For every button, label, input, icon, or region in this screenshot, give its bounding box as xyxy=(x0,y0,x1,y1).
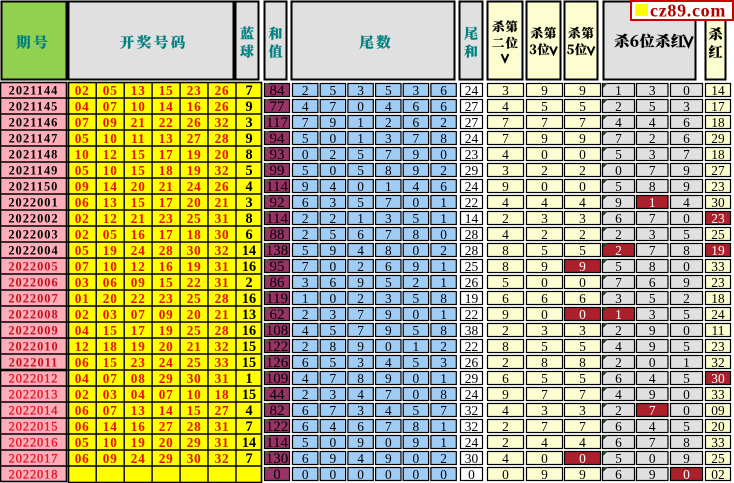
svg-text:4: 4 xyxy=(357,451,364,466)
svg-text:02: 02 xyxy=(75,387,90,402)
svg-text:23: 23 xyxy=(711,179,725,194)
svg-text:13: 13 xyxy=(103,195,118,210)
svg-text:0: 0 xyxy=(330,131,337,146)
svg-text:9: 9 xyxy=(357,339,364,354)
svg-text:25: 25 xyxy=(187,355,202,370)
svg-text:5: 5 xyxy=(385,275,392,290)
svg-text:18: 18 xyxy=(711,291,725,306)
svg-text:14: 14 xyxy=(159,99,174,114)
svg-text:10: 10 xyxy=(187,387,202,402)
svg-text:2022002: 2022002 xyxy=(8,212,58,226)
svg-text:09: 09 xyxy=(103,451,118,466)
svg-text:8: 8 xyxy=(440,131,447,146)
svg-text:30: 30 xyxy=(187,451,202,466)
svg-text:0: 0 xyxy=(683,467,690,482)
svg-text:9: 9 xyxy=(502,387,509,402)
svg-text:24: 24 xyxy=(131,451,146,466)
svg-text:1: 1 xyxy=(413,339,420,354)
svg-text:28: 28 xyxy=(215,131,230,146)
svg-text:2: 2 xyxy=(683,291,690,306)
svg-text:06: 06 xyxy=(75,419,90,434)
svg-text:6: 6 xyxy=(541,291,548,306)
svg-text:130: 130 xyxy=(266,451,289,467)
svg-text:4: 4 xyxy=(579,435,586,450)
svg-text:0: 0 xyxy=(579,275,586,290)
svg-text:27: 27 xyxy=(215,403,230,418)
svg-text:5: 5 xyxy=(245,163,252,179)
svg-text:19: 19 xyxy=(187,163,202,178)
svg-text:11: 11 xyxy=(712,323,725,338)
svg-text:17: 17 xyxy=(159,195,174,210)
svg-text:2: 2 xyxy=(502,419,509,434)
svg-text:8: 8 xyxy=(440,387,447,402)
svg-text:3: 3 xyxy=(649,307,656,322)
svg-text:2022005: 2022005 xyxy=(8,260,58,274)
svg-text:119: 119 xyxy=(266,291,288,307)
svg-text:2022015: 2022015 xyxy=(9,420,59,434)
svg-text:2: 2 xyxy=(302,211,309,226)
svg-text:06: 06 xyxy=(75,195,90,210)
svg-text:7: 7 xyxy=(683,147,690,162)
svg-text:3: 3 xyxy=(502,83,509,98)
svg-text:5: 5 xyxy=(683,419,690,434)
svg-text:15: 15 xyxy=(103,323,118,338)
svg-text:0: 0 xyxy=(683,323,690,338)
svg-text:15: 15 xyxy=(131,163,146,178)
svg-text:2021144: 2021144 xyxy=(9,84,59,98)
svg-text:30: 30 xyxy=(187,243,202,258)
svg-text:6: 6 xyxy=(683,131,690,146)
svg-text:32: 32 xyxy=(215,163,230,178)
svg-text:24: 24 xyxy=(465,387,479,402)
svg-text:1: 1 xyxy=(440,195,447,210)
svg-text:0: 0 xyxy=(440,227,447,242)
svg-text:16: 16 xyxy=(131,419,146,434)
svg-text:4: 4 xyxy=(385,99,392,114)
svg-text:4: 4 xyxy=(502,195,509,210)
svg-text:17: 17 xyxy=(159,227,174,242)
svg-text:29: 29 xyxy=(465,371,479,386)
svg-text:15: 15 xyxy=(242,387,256,403)
svg-text:2: 2 xyxy=(440,115,447,130)
svg-text:5: 5 xyxy=(615,451,622,466)
svg-text:25: 25 xyxy=(187,211,202,226)
svg-text:13: 13 xyxy=(131,403,146,418)
svg-text:7: 7 xyxy=(579,115,586,130)
svg-text:2022018: 2022018 xyxy=(9,468,59,482)
svg-text:7: 7 xyxy=(649,435,656,450)
svg-text:2: 2 xyxy=(649,131,656,146)
svg-text:9: 9 xyxy=(330,451,337,466)
svg-text:10: 10 xyxy=(103,435,118,450)
svg-text:28: 28 xyxy=(215,323,230,338)
svg-text:07: 07 xyxy=(131,307,146,322)
svg-text:3: 3 xyxy=(649,227,656,242)
svg-text:26: 26 xyxy=(187,115,202,130)
svg-text:2: 2 xyxy=(302,83,309,98)
svg-text:2: 2 xyxy=(302,387,309,402)
svg-text:3: 3 xyxy=(541,403,548,418)
svg-text:0: 0 xyxy=(330,291,337,306)
svg-text:3: 3 xyxy=(357,403,364,418)
svg-text:17: 17 xyxy=(131,323,146,338)
svg-text:2: 2 xyxy=(357,259,364,274)
svg-text:7: 7 xyxy=(302,259,309,274)
svg-text:3: 3 xyxy=(302,275,309,290)
svg-text:95: 95 xyxy=(270,259,285,275)
svg-text:7: 7 xyxy=(357,307,364,322)
svg-text:7: 7 xyxy=(330,371,337,386)
svg-text:0: 0 xyxy=(579,307,586,322)
svg-text:4: 4 xyxy=(649,419,656,434)
svg-text:2: 2 xyxy=(245,275,252,291)
svg-text:5: 5 xyxy=(649,99,656,114)
svg-text:22: 22 xyxy=(465,195,478,210)
svg-text:2: 2 xyxy=(302,339,309,354)
svg-text:3: 3 xyxy=(649,83,656,98)
svg-text:3: 3 xyxy=(413,83,420,98)
svg-text:114: 114 xyxy=(266,211,288,227)
svg-text:0: 0 xyxy=(330,163,337,178)
svg-text:9: 9 xyxy=(683,451,690,466)
svg-text:5: 5 xyxy=(413,403,420,418)
svg-text:16: 16 xyxy=(131,227,146,242)
svg-text:1: 1 xyxy=(440,307,447,322)
svg-text:22: 22 xyxy=(131,291,146,306)
svg-text:6: 6 xyxy=(413,99,420,114)
svg-text:2022014: 2022014 xyxy=(9,404,59,418)
svg-text:0: 0 xyxy=(385,435,392,450)
svg-text:9: 9 xyxy=(615,195,622,210)
svg-text:77: 77 xyxy=(270,99,286,115)
svg-text:21: 21 xyxy=(215,195,230,210)
svg-text:01: 01 xyxy=(75,291,90,306)
svg-text:2: 2 xyxy=(502,323,509,338)
svg-text:8: 8 xyxy=(683,435,690,450)
svg-text:15: 15 xyxy=(187,403,202,418)
svg-text:2: 2 xyxy=(357,291,364,306)
svg-text:4: 4 xyxy=(245,403,252,419)
svg-text:33: 33 xyxy=(711,435,725,450)
svg-text:5: 5 xyxy=(615,179,622,194)
svg-text:3: 3 xyxy=(385,131,392,146)
svg-text:2: 2 xyxy=(302,227,309,242)
svg-text:06: 06 xyxy=(75,451,90,466)
svg-text:1: 1 xyxy=(440,211,447,226)
svg-text:2: 2 xyxy=(440,451,447,466)
svg-text:19: 19 xyxy=(187,147,202,162)
svg-text:0: 0 xyxy=(579,451,586,466)
svg-text:8: 8 xyxy=(502,259,509,274)
svg-text:15: 15 xyxy=(242,355,256,371)
svg-text:8: 8 xyxy=(413,227,420,242)
svg-text:6: 6 xyxy=(330,275,337,290)
svg-text:0: 0 xyxy=(683,211,690,226)
svg-text:7: 7 xyxy=(649,243,656,258)
svg-text:04: 04 xyxy=(75,323,90,338)
svg-text:8: 8 xyxy=(440,291,447,306)
svg-text:23: 23 xyxy=(159,291,174,306)
svg-text:3: 3 xyxy=(541,323,548,338)
svg-text:0: 0 xyxy=(273,467,281,483)
svg-text:6: 6 xyxy=(357,419,364,434)
svg-text:5: 5 xyxy=(330,227,337,242)
svg-text:0: 0 xyxy=(413,451,420,466)
svg-text:7: 7 xyxy=(541,115,548,130)
svg-text:9: 9 xyxy=(649,339,656,354)
svg-text:9: 9 xyxy=(413,147,420,162)
svg-text:6: 6 xyxy=(302,355,309,370)
svg-text:02: 02 xyxy=(75,227,90,242)
svg-text:20: 20 xyxy=(159,435,174,450)
svg-text:0: 0 xyxy=(541,451,548,466)
svg-text:02: 02 xyxy=(75,307,90,322)
svg-text:8: 8 xyxy=(440,323,447,338)
svg-text:3: 3 xyxy=(357,355,364,370)
svg-text:14: 14 xyxy=(242,435,256,451)
svg-text:9: 9 xyxy=(683,163,690,178)
svg-text:2022007: 2022007 xyxy=(8,292,58,306)
svg-text:29: 29 xyxy=(159,451,174,466)
svg-text:5: 5 xyxy=(413,211,420,226)
svg-text:3: 3 xyxy=(385,211,392,226)
svg-text:32: 32 xyxy=(215,339,230,354)
svg-text:7: 7 xyxy=(385,227,392,242)
svg-text:6: 6 xyxy=(502,371,509,386)
svg-text:16: 16 xyxy=(242,291,256,307)
svg-text:0: 0 xyxy=(413,467,420,482)
svg-text:6: 6 xyxy=(357,227,364,242)
svg-text:2022001: 2022001 xyxy=(8,196,58,210)
svg-text:5: 5 xyxy=(541,99,548,114)
svg-text:9: 9 xyxy=(245,131,252,147)
svg-text:4: 4 xyxy=(302,323,309,338)
svg-text:84: 84 xyxy=(270,83,286,99)
svg-text:4: 4 xyxy=(541,435,548,450)
svg-text:94: 94 xyxy=(270,131,286,147)
svg-text:6: 6 xyxy=(615,211,622,226)
svg-text:2022003: 2022003 xyxy=(8,228,58,242)
svg-text:26: 26 xyxy=(215,179,230,194)
svg-text:5: 5 xyxy=(302,163,309,178)
svg-text:24: 24 xyxy=(465,179,479,194)
svg-text:99: 99 xyxy=(270,163,285,179)
svg-text:15: 15 xyxy=(131,147,146,162)
svg-text:2021148: 2021148 xyxy=(9,148,59,162)
svg-text:2: 2 xyxy=(615,403,622,418)
svg-text:2022004: 2022004 xyxy=(8,244,58,258)
svg-text:9: 9 xyxy=(245,99,252,115)
svg-text:6: 6 xyxy=(440,99,447,114)
svg-text:7: 7 xyxy=(541,419,548,434)
svg-text:4: 4 xyxy=(502,99,509,114)
svg-text:8: 8 xyxy=(579,355,586,370)
svg-text:2: 2 xyxy=(440,339,447,354)
svg-text:8: 8 xyxy=(330,339,337,354)
svg-text:0: 0 xyxy=(302,467,309,482)
svg-text:7: 7 xyxy=(330,403,337,418)
svg-text:2022013: 2022013 xyxy=(9,388,59,402)
svg-text:93: 93 xyxy=(270,147,285,163)
svg-text:5: 5 xyxy=(357,195,364,210)
svg-text:30: 30 xyxy=(465,451,479,466)
svg-text:09: 09 xyxy=(103,115,118,130)
svg-text:3: 3 xyxy=(330,195,337,210)
svg-text:122: 122 xyxy=(266,419,289,435)
svg-text:8: 8 xyxy=(502,339,509,354)
svg-text:1: 1 xyxy=(615,83,622,98)
svg-text:9: 9 xyxy=(385,371,392,386)
svg-text:28: 28 xyxy=(187,419,202,434)
svg-text:6: 6 xyxy=(615,419,622,434)
svg-text:3: 3 xyxy=(245,115,252,131)
svg-text:9: 9 xyxy=(413,259,420,274)
svg-text:8: 8 xyxy=(385,243,392,258)
svg-text:29: 29 xyxy=(465,163,479,178)
svg-text:4: 4 xyxy=(357,243,364,258)
svg-text:06: 06 xyxy=(75,403,90,418)
svg-text:2: 2 xyxy=(302,307,309,322)
svg-text:33: 33 xyxy=(711,259,725,274)
svg-text:23: 23 xyxy=(131,355,146,370)
svg-text:3: 3 xyxy=(330,387,337,402)
svg-text:5: 5 xyxy=(683,307,690,322)
svg-text:25: 25 xyxy=(187,291,202,306)
svg-text:1: 1 xyxy=(440,419,447,434)
svg-text:5: 5 xyxy=(413,291,420,306)
svg-text:22: 22 xyxy=(187,275,202,290)
svg-text:6: 6 xyxy=(683,115,690,130)
svg-text:88: 88 xyxy=(270,227,285,243)
svg-text:19: 19 xyxy=(187,259,202,274)
svg-text:02: 02 xyxy=(75,211,90,226)
svg-text:25: 25 xyxy=(465,259,479,274)
svg-text:3: 3 xyxy=(541,211,548,226)
svg-text:7: 7 xyxy=(385,387,392,402)
svg-text:12: 12 xyxy=(75,339,90,354)
svg-text:12: 12 xyxy=(131,259,146,274)
svg-text:24: 24 xyxy=(465,131,479,146)
svg-text:32: 32 xyxy=(215,115,230,130)
svg-text:4: 4 xyxy=(615,339,622,354)
svg-text:7: 7 xyxy=(649,163,656,178)
svg-text:0: 0 xyxy=(683,403,690,418)
svg-text:82: 82 xyxy=(270,403,285,419)
svg-text:0: 0 xyxy=(413,195,420,210)
svg-text:6: 6 xyxy=(302,451,309,466)
svg-text:19: 19 xyxy=(159,323,174,338)
svg-text:2022012: 2022012 xyxy=(9,372,59,386)
svg-text:6: 6 xyxy=(413,115,420,130)
svg-text:33: 33 xyxy=(711,387,725,402)
svg-text:22: 22 xyxy=(465,339,478,354)
svg-text:8: 8 xyxy=(683,243,690,258)
svg-text:26: 26 xyxy=(465,275,479,290)
svg-text:2: 2 xyxy=(579,163,586,178)
svg-text:9: 9 xyxy=(330,115,337,130)
svg-text:06: 06 xyxy=(75,355,90,370)
svg-text:1: 1 xyxy=(683,355,690,370)
svg-text:2022010: 2022010 xyxy=(8,340,58,354)
svg-text:1: 1 xyxy=(440,275,447,290)
svg-text:0: 0 xyxy=(440,467,447,482)
svg-text:5: 5 xyxy=(579,99,586,114)
svg-text:0: 0 xyxy=(357,467,364,482)
svg-text:20: 20 xyxy=(187,307,202,322)
svg-text:16: 16 xyxy=(159,259,174,274)
svg-text:20: 20 xyxy=(103,291,118,306)
svg-text:12: 12 xyxy=(103,211,118,226)
svg-text:7: 7 xyxy=(385,419,392,434)
svg-text:6: 6 xyxy=(615,371,622,386)
svg-text:07: 07 xyxy=(103,403,118,418)
svg-text:23: 23 xyxy=(187,83,202,98)
svg-text:23: 23 xyxy=(159,211,174,226)
svg-text:44: 44 xyxy=(270,387,286,403)
svg-text:4: 4 xyxy=(385,403,392,418)
svg-text:3: 3 xyxy=(330,307,337,322)
svg-text:24: 24 xyxy=(187,179,202,194)
svg-text:04: 04 xyxy=(75,99,90,114)
svg-text:05: 05 xyxy=(75,131,90,146)
svg-text:23: 23 xyxy=(711,339,725,354)
svg-text:03: 03 xyxy=(103,387,118,402)
svg-text:9: 9 xyxy=(649,323,656,338)
svg-text:15: 15 xyxy=(242,339,256,355)
svg-text:14: 14 xyxy=(242,243,256,259)
svg-text:22: 22 xyxy=(465,307,478,322)
svg-text:4: 4 xyxy=(579,195,586,210)
svg-text:27: 27 xyxy=(711,163,725,178)
svg-text:10: 10 xyxy=(103,163,118,178)
svg-text:2: 2 xyxy=(330,147,337,162)
svg-text:2: 2 xyxy=(440,163,447,178)
svg-text:2: 2 xyxy=(615,227,622,242)
svg-text:0: 0 xyxy=(615,163,622,178)
svg-text:30: 30 xyxy=(215,227,230,242)
svg-text:2: 2 xyxy=(615,99,622,114)
svg-text:5: 5 xyxy=(579,243,586,258)
svg-text:32: 32 xyxy=(465,403,478,418)
svg-text:23: 23 xyxy=(711,275,725,290)
svg-text:31: 31 xyxy=(215,259,230,274)
svg-text:6: 6 xyxy=(302,403,309,418)
svg-text:08: 08 xyxy=(131,371,146,386)
svg-text:13: 13 xyxy=(131,83,146,98)
svg-text:5: 5 xyxy=(357,147,364,162)
svg-text:10: 10 xyxy=(131,99,146,114)
svg-text:3: 3 xyxy=(649,147,656,162)
svg-text:19: 19 xyxy=(465,291,479,306)
svg-text:27: 27 xyxy=(187,131,202,146)
svg-text:0: 0 xyxy=(579,179,586,194)
svg-text:126: 126 xyxy=(266,355,289,371)
svg-text:29: 29 xyxy=(187,435,202,450)
svg-text:8: 8 xyxy=(357,371,364,386)
svg-text:5: 5 xyxy=(649,291,656,306)
svg-text:10: 10 xyxy=(103,131,118,146)
svg-text:108: 108 xyxy=(266,323,289,339)
svg-text:9: 9 xyxy=(330,243,337,258)
svg-text:0: 0 xyxy=(330,259,337,274)
svg-text:02: 02 xyxy=(75,83,90,98)
svg-text:27: 27 xyxy=(465,115,479,130)
svg-text:30: 30 xyxy=(711,195,725,210)
svg-text:0: 0 xyxy=(357,179,364,194)
svg-text:1: 1 xyxy=(357,115,364,130)
svg-text:2: 2 xyxy=(579,227,586,242)
svg-text:06: 06 xyxy=(103,275,118,290)
